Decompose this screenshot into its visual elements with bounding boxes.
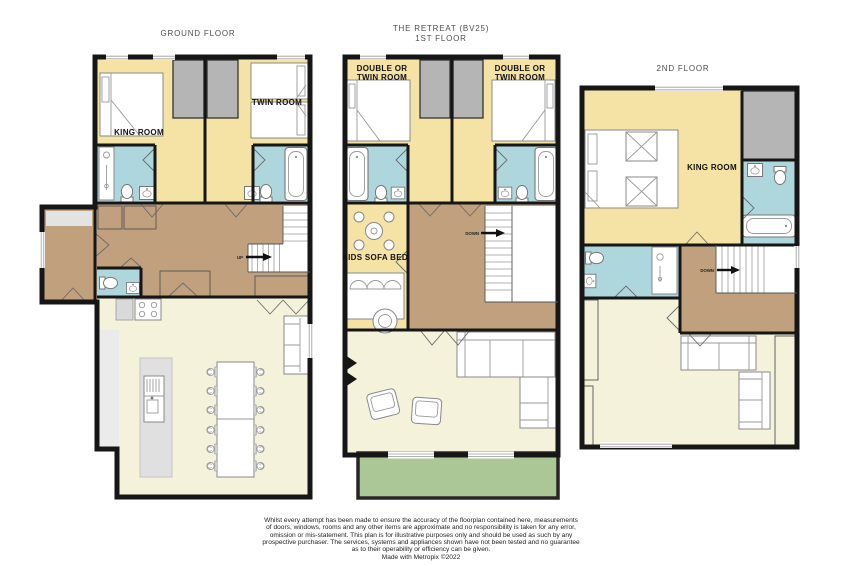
room-label-king-ground: KING ROOM: [114, 128, 164, 137]
wardrobe-king-ground: [173, 60, 204, 118]
room-label-double-right-1: DOUBLE OR: [495, 64, 546, 73]
closet-second: [742, 91, 797, 160]
toilet-wc: [100, 277, 118, 289]
room-label-kids-sofa-bed: KIDS SOFA BED: [342, 253, 408, 262]
bath-ground-ensuite-twin: [285, 148, 307, 201]
stove-icon: [116, 299, 161, 320]
balcony: [358, 453, 558, 498]
sink-first-right: [498, 187, 512, 199]
disclaimer-line: of doors, windows, rooms and any other i…: [0, 524, 842, 531]
bath-second-ensuite: [743, 215, 796, 237]
sink-first-left: [391, 187, 405, 199]
ground-floor-title: GROUND FLOOR: [161, 29, 236, 38]
bath-first-left: [346, 148, 368, 201]
room-kitchen-diner: [97, 297, 310, 497]
armchair-2: [411, 397, 442, 425]
ground-floor-plan: UP KING ROOM TWIN ROOM: [39, 54, 313, 497]
toilet-second-ensuite: [774, 167, 786, 185]
loveseat-second: [739, 372, 770, 429]
disclaimer-line: prospective purchaser. The services, sys…: [0, 539, 842, 546]
first-floor-plan: DOWN DOUBLE OR TWIN ROOM DOUBLE OR TWIN …: [342, 54, 558, 498]
stairs-up-label: UP: [237, 255, 243, 260]
floorplan-svg: UP KING ROOM TWIN ROOM: [0, 0, 842, 565]
toilet-first-left: [375, 186, 387, 204]
shower-ground-ensuite: [99, 147, 114, 200]
toilet-first-right: [516, 186, 528, 204]
property-title: THE RETREAT (BV25): [393, 24, 489, 33]
wardrobe-twin-ground: [207, 60, 238, 118]
bed-double-left: [347, 80, 410, 141]
first-floor-title: 1ST FLOOR: [415, 34, 467, 43]
second-floor-plan: DOWN KING ROOM: [582, 85, 800, 448]
room-label-double-left-2: TWIN ROOM: [357, 73, 407, 82]
wardrobe-left-first: [420, 60, 450, 118]
bath-first-right: [535, 148, 557, 201]
disclaimer: Whilst every attempt has been made to en…: [0, 517, 842, 561]
shower-second: [652, 247, 677, 294]
disclaimer-line: Whilst every attempt has been made to en…: [0, 517, 842, 524]
stairwell-ground: [283, 206, 310, 272]
bed-king-second: [585, 130, 678, 208]
room-label-double-left-1: DOUBLE OR: [357, 64, 408, 73]
second-floor-title: 2ND FLOOR: [657, 64, 710, 73]
metropix-credit: Made with Metropix ©2022: [0, 554, 842, 561]
dining-table: [217, 362, 254, 477]
room-label-double-right-2: TWIN ROOM: [495, 73, 545, 82]
toilet-ground-ensuite-twin: [260, 185, 272, 203]
sofa-ground: [284, 316, 308, 374]
kitchen-island: [140, 358, 172, 477]
sofa-bed-icon: [347, 273, 404, 319]
bed-twin-2: [251, 102, 308, 138]
entrance-mat: [46, 211, 92, 226]
sink-second-shower-room: [584, 274, 596, 288]
room-label-king-second: KING ROOM: [687, 163, 737, 172]
disclaimer-line: omission or mis-statement. This plan is …: [0, 532, 842, 539]
toilet-second-shower-room: [586, 252, 604, 264]
disclaimer-line: as to their operability or efficiency ca…: [0, 546, 842, 553]
bed-king-ground: [100, 73, 163, 136]
kitchen-counter-strip: [99, 330, 119, 447]
sofa-second: [681, 336, 756, 370]
sink-ground-ensuite-king: [140, 187, 155, 200]
bed-twin-1: [251, 63, 308, 99]
wardrobe-right-first: [453, 60, 483, 118]
toilet-ground-ensuite-king: [121, 185, 133, 203]
sink-second-ensuite: [748, 164, 763, 177]
stairs-down-first-label: DOWN: [465, 231, 479, 236]
room-label-twin-ground: TWIN ROOM: [252, 98, 302, 107]
sink-wc: [127, 282, 140, 293]
bed-double-right: [492, 80, 555, 141]
stairs-down-second-label: DOWN: [700, 268, 714, 273]
floorplan-image: UP KING ROOM TWIN ROOM: [0, 0, 842, 565]
